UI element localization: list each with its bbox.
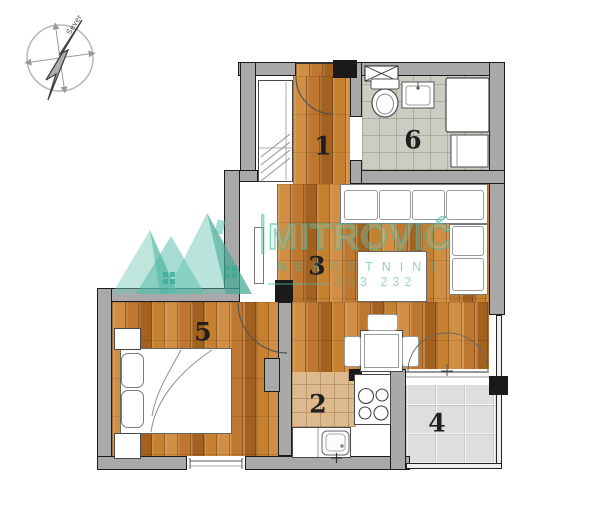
- north-arrow-icon: [46, 20, 82, 100]
- floor-terrace: [406, 385, 496, 464]
- bed-pillow: [121, 390, 144, 428]
- nightstand-bottom: [114, 433, 141, 459]
- chair-right: [402, 336, 419, 367]
- floor-entry-threshold: [296, 62, 333, 76]
- wall-bottom-left: [97, 456, 187, 470]
- wall-bedroom-right: [278, 302, 292, 456]
- room-label-5: 5: [194, 318, 211, 347]
- pillar-terrace-stub: [489, 376, 508, 395]
- room-label-6: 6: [404, 126, 421, 155]
- wardrobe: [258, 80, 293, 182]
- chair-left: [344, 336, 361, 367]
- sofa-cushion: [452, 258, 484, 291]
- dining-table: [360, 330, 403, 372]
- compass-rose: [19, 17, 100, 100]
- room-label-4: 4: [428, 409, 445, 438]
- compass-label: Sever: [64, 13, 84, 36]
- sofa-cushion: [452, 226, 484, 256]
- wall-bottom-right: [245, 456, 410, 470]
- radiator: [254, 227, 264, 284]
- chair-top: [367, 314, 398, 331]
- wall-kitchen-right: [390, 369, 406, 470]
- watermark-phone: 063 232: [336, 275, 416, 289]
- stove-counter: [354, 374, 391, 425]
- watermark-brand: MITROVIĆ: [268, 216, 452, 258]
- room-label-1: 1: [314, 132, 331, 161]
- pillar-entrance: [333, 60, 357, 78]
- wall-bedroom-top: [97, 288, 240, 302]
- floor-plan: Sever 1 2 3 4 5 6 MITROVIĆ NEKRETNINE 06…: [0, 0, 600, 509]
- wall-bathroom-bottom: [350, 170, 505, 184]
- wall-hallway-left: [240, 62, 256, 182]
- floor-bathroom: [362, 76, 489, 170]
- terrace-railing-bottom: [406, 463, 502, 469]
- wall-corridor-left: [224, 170, 240, 302]
- bed-pillow: [121, 353, 144, 388]
- floor-hallway: [293, 76, 350, 184]
- pillar-bedroom-door: [275, 280, 293, 302]
- watermark-subtitle: NEKRETNINE: [277, 260, 448, 274]
- balcony-door-threshold: [406, 369, 489, 385]
- wall-right: [489, 62, 505, 315]
- room-label-2: 2: [309, 390, 326, 419]
- sink-counter: [292, 427, 351, 458]
- wall-top-bathroom: [345, 62, 505, 76]
- dining-table-top: [364, 334, 399, 368]
- bedroom-window-strip: [187, 456, 245, 470]
- wall-bathroom-left-lower: [350, 160, 362, 184]
- wall-bedroom-left: [97, 288, 112, 470]
- wall-bedroom-pier: [264, 358, 280, 392]
- nightstand-top: [114, 328, 141, 350]
